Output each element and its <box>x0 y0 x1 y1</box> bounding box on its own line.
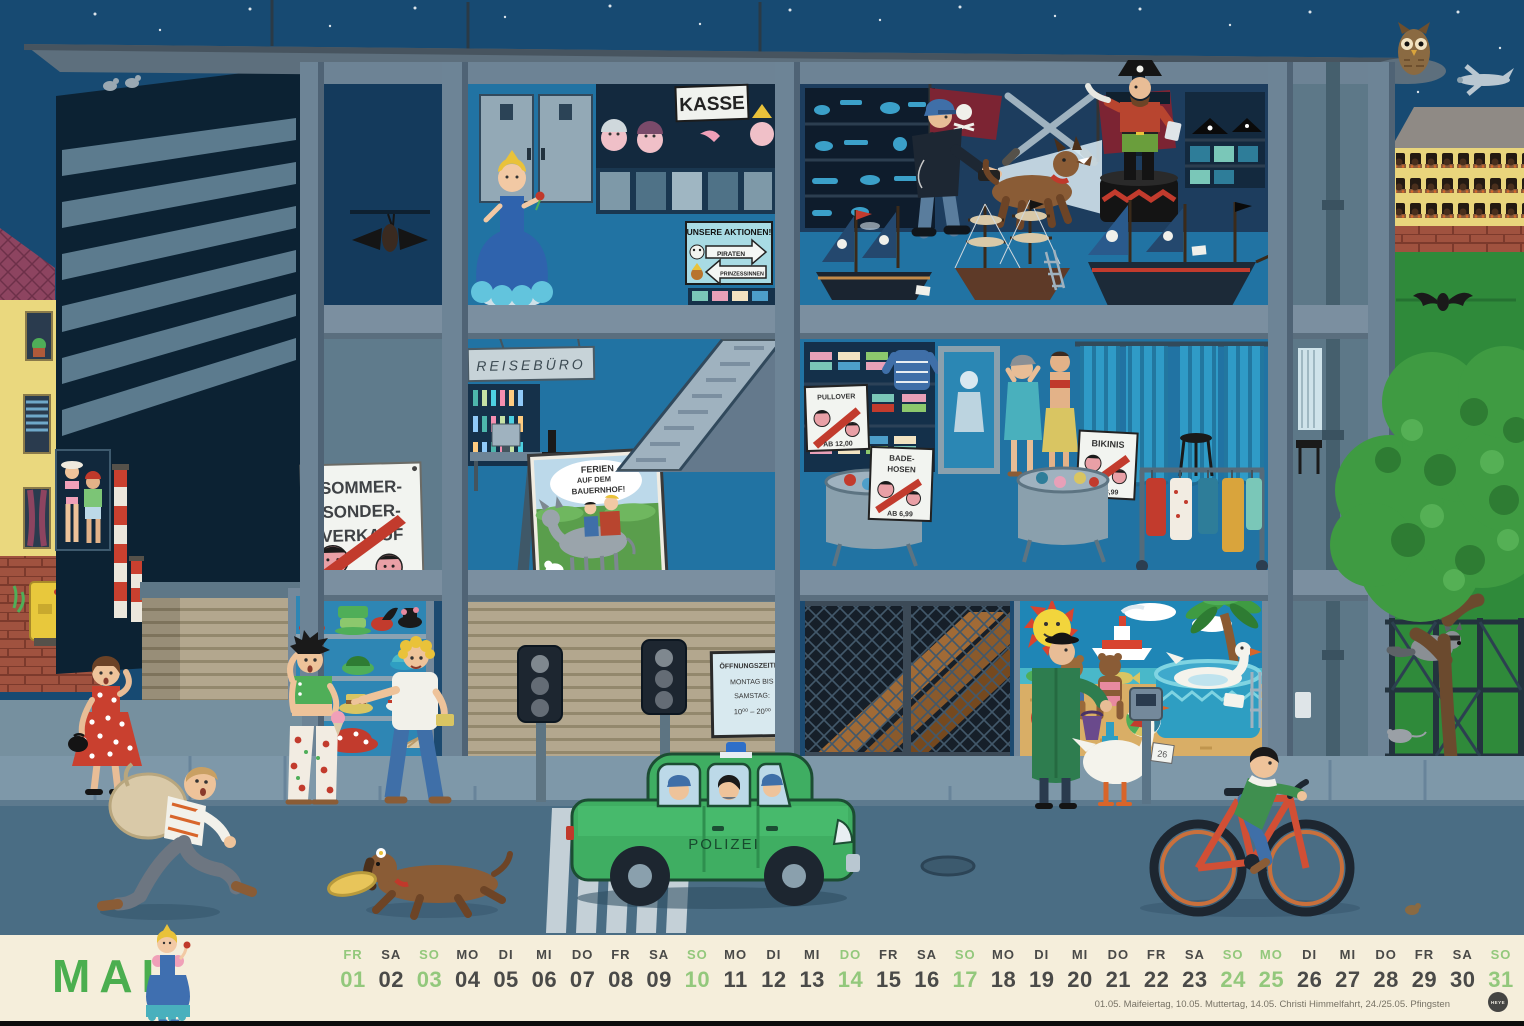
calendar-day: DO07 <box>566 947 600 993</box>
campaign-title: UNSERE AKTIONEN! <box>687 227 772 237</box>
calendar-day: SA30 <box>1446 947 1480 993</box>
calendar-day: DI26 <box>1293 947 1327 993</box>
publisher-logo: HEYE <box>1488 992 1508 1012</box>
calendar-day: SO03 <box>413 947 447 993</box>
ferien-line1: FERIEN <box>581 463 614 475</box>
calendar-day: SO24 <box>1216 947 1250 993</box>
bikinis-title: BIKINIS <box>1091 438 1124 450</box>
calendar-day: MI27 <box>1331 947 1365 993</box>
calendar-day: MI20 <box>1063 947 1097 993</box>
ferien-line2: AUF DEM <box>577 474 612 485</box>
calendar-day: MO11 <box>719 947 753 993</box>
calendar-day: SO31 <box>1484 947 1518 993</box>
holiday-footnote: 01.05. Maifeiertag, 10.05. Muttertag, 14… <box>1095 999 1450 1010</box>
calendar-day: DI12 <box>757 947 791 993</box>
kasse-sign: KASSE <box>675 85 748 121</box>
calendar-day: SA23 <box>1178 947 1212 993</box>
calendar-day: FR15 <box>872 947 906 993</box>
calendar-day: SA09 <box>642 947 676 993</box>
piraten-arrow-label: PIRATEN <box>717 251 745 258</box>
badehosen-line2: HOSEN <box>887 465 916 475</box>
linen-shelf <box>688 288 775 305</box>
prinzessinnen-arrow-label: PRINZESSINNEN <box>720 272 764 278</box>
badehosen-price: AB 6,99 <box>887 511 913 519</box>
owl <box>1398 22 1430 75</box>
calendar-day: FR29 <box>1407 947 1441 993</box>
kasse-label: KASSE <box>679 93 745 116</box>
calendar-strip: MAI FR01 SA02 SO03 MO04 DI05 MI06 DO07 F… <box>0 935 1524 1026</box>
reisebuero-sign: REISEBÜRO <box>468 347 595 381</box>
summer-sale-line2: SONDER- <box>322 501 401 522</box>
polizei-label: POLIZEI <box>688 836 760 853</box>
badehosen-sale-sign: BADE- HOSEN AB 6,99 <box>869 447 933 521</box>
switch-panel <box>1295 692 1311 718</box>
manhole <box>922 857 974 875</box>
bottom-border <box>0 1021 1524 1026</box>
calendar-day: SA02 <box>374 947 408 993</box>
side-display-window <box>56 450 110 550</box>
hours-line3: SAMSTAG: <box>734 693 770 701</box>
pirate-hat-shelf <box>1185 92 1265 188</box>
meter-tag-label: 26 <box>1157 748 1168 759</box>
department-store: SOMMER- SONDER- VERKAUF <box>24 0 1446 786</box>
calendar-day: MI06 <box>527 947 561 993</box>
campaign-sign: UNSERE AKTIONEN! PIRATEN PRINZESSINNEN <box>686 222 772 284</box>
sleeping-bird-windows <box>1396 151 1524 224</box>
calendar-day: DO14 <box>833 947 867 993</box>
calendar-day: MO04 <box>451 947 485 993</box>
calendar-day: FR22 <box>1140 947 1174 993</box>
princess-month-icon <box>132 923 202 1023</box>
hours-line2: MONTAG BIS <box>730 679 774 687</box>
closed-gates <box>805 600 1010 760</box>
summer-sale-line1: SOMMER- <box>320 477 403 498</box>
night-scene-illustration: SOMMER- SONDER- VERKAUF <box>0 0 1524 935</box>
hours-line4: 10⁰⁰ – 20⁰⁰ <box>734 707 771 717</box>
calendar-day: DI05 <box>489 947 523 993</box>
pullover-title: PULLOVER <box>817 393 855 401</box>
calendar-day: MO25 <box>1254 947 1288 993</box>
calendar-day: DO28 <box>1369 947 1403 993</box>
calendar-day: FR08 <box>604 947 638 993</box>
toy-boxes-shelf <box>596 168 775 214</box>
calendar-day: DO21 <box>1101 947 1135 993</box>
calendar-day: SO10 <box>680 947 714 993</box>
garden-brick-wall <box>1393 226 1524 252</box>
calendar-day: SA16 <box>910 947 944 993</box>
pullover-price: AB 12,00 <box>823 440 853 448</box>
calendar-day: MI13 <box>795 947 829 993</box>
calendar-day: DI19 <box>1025 947 1059 993</box>
house-windows <box>24 312 52 548</box>
car-windows <box>658 764 790 806</box>
calendar-days-row: FR01 SA02 SO03 MO04 DI05 MI06 DO07 FR08 … <box>336 947 1518 993</box>
badehosen-line1: BADE- <box>889 454 915 464</box>
calendar-day: FR01 <box>336 947 370 993</box>
pullover-sale-sign: PULLOVER AB 12,00 <box>805 385 869 451</box>
reisebuero-label: REISEBÜRO <box>476 355 586 374</box>
calendar-day: MO18 <box>987 947 1021 993</box>
calendar-page: SOMMER- SONDER- VERKAUF <box>0 0 1524 1026</box>
mirror <box>938 346 1000 474</box>
calendar-day: SO17 <box>948 947 982 993</box>
